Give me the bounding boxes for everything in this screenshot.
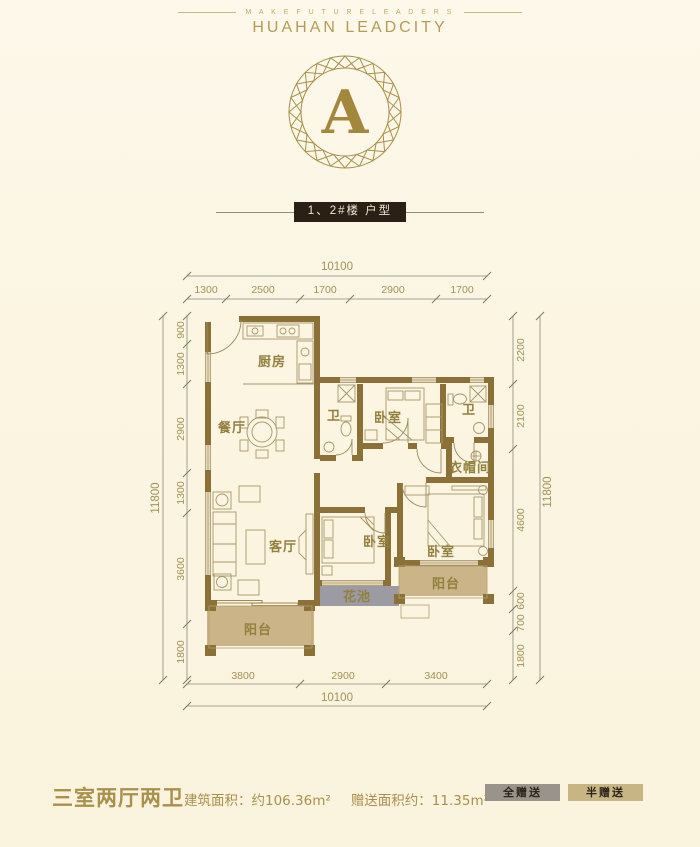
dim-left-4: 1300 — [175, 481, 187, 505]
dim-left-2: 1300 — [175, 352, 187, 376]
label-bath-2: 卫 — [462, 403, 476, 418]
label-dining: 餐厅 — [217, 420, 246, 436]
badge-half-gift: 半赠送 — [568, 784, 643, 801]
dim-bottom-total: 10100 — [321, 692, 353, 704]
dim-top-3: 1700 — [313, 284, 337, 296]
dim-top-5: 1700 — [450, 284, 474, 296]
dim-bottom-2: 2900 — [331, 670, 355, 682]
dim-left-3: 2900 — [175, 417, 187, 441]
dim-right-5: 700 — [515, 614, 527, 632]
label-living: 客厅 — [269, 539, 297, 555]
dim-top-2: 2500 — [251, 284, 275, 296]
dim-top-4: 2900 — [381, 284, 405, 296]
floorplan-page: M A K E F U T U R E L E A D E R S HUAHAN… — [0, 0, 700, 847]
label-bath-1: 卫 — [327, 409, 341, 424]
layout-type: 三室两厅两卫 — [52, 782, 184, 812]
dim-right-4: 600 — [515, 592, 527, 610]
doors-layer — [207, 320, 474, 533]
dim-bottom-3: 3400 — [424, 670, 448, 682]
dim-right-1: 2200 — [515, 338, 527, 362]
label-bedroom-3: 卧室 — [427, 544, 455, 560]
label-bedroom-1: 卧室 — [374, 410, 402, 426]
footer-summary: 三室两厅两卫 建筑面积：约106.36m² 赠送面积约：11.35m² — [52, 782, 489, 812]
label-kitchen: 厨房 — [258, 354, 286, 370]
dim-bottom-1: 3800 — [231, 670, 255, 682]
dim-left-total: 11800 — [150, 482, 162, 513]
dim-left-6: 1800 — [175, 640, 187, 664]
dim-right-6: 1800 — [515, 644, 527, 668]
dim-top-1: 1300 — [194, 284, 218, 296]
built-area: 建筑面积：约106.36m² — [184, 789, 331, 809]
label-balcony-left: 阳台 — [244, 622, 272, 638]
gift-area: 赠送面积约：11.35m² — [351, 789, 489, 809]
dim-left-1: 900 — [175, 321, 187, 339]
dim-right-2: 2100 — [515, 404, 527, 428]
dim-top-total: 10100 — [321, 261, 353, 273]
dim-right-total: 11800 — [542, 476, 554, 507]
label-bedroom-2: 卧室 — [363, 534, 391, 550]
dim-right-3: 4600 — [515, 508, 527, 532]
badge-full-gift: 全赠送 — [485, 784, 560, 801]
label-flower-bed: 花池 — [343, 589, 371, 605]
dim-left-5: 3600 — [175, 557, 187, 581]
label-balcony-right: 阳台 — [432, 576, 460, 592]
floorplan-drawing: 10100 1300 2500 1700 2900 1700 3800 2900… — [0, 0, 700, 847]
label-cloakroom: 衣帽间 — [449, 460, 491, 476]
